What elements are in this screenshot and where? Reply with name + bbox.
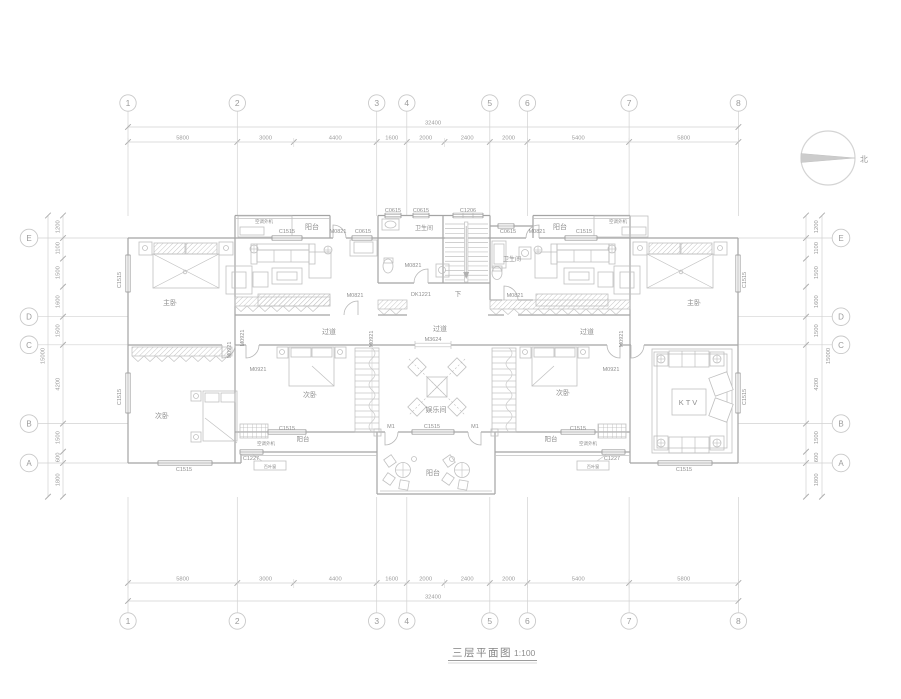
plan-label: 主卧	[687, 298, 701, 307]
grid-letter-left: B	[26, 420, 31, 429]
plan-label: C1515	[570, 426, 586, 432]
dim-top: 2400	[461, 136, 474, 142]
plan-label: C1206	[460, 208, 476, 214]
title-block: 三层平面图 1:100	[448, 647, 537, 663]
dim-left-total: 15000	[41, 348, 47, 364]
furniture-item	[714, 242, 727, 255]
grid-number-top: 2	[235, 98, 240, 108]
furniture-item	[669, 437, 709, 453]
furniture-item	[309, 244, 315, 264]
plan-label: C1515	[176, 467, 192, 473]
wardrobe-column	[355, 348, 379, 432]
furniture-item	[614, 266, 640, 294]
toilet	[383, 259, 393, 273]
dimension-system: 5800580030003000440044001600160020002000…	[41, 121, 833, 604]
furniture-item	[257, 244, 309, 250]
furniture-item	[620, 272, 634, 288]
chair	[458, 480, 468, 490]
plan-label: 空调外机	[257, 440, 275, 447]
furniture-item	[139, 242, 152, 255]
dim-left: 1500	[56, 324, 62, 337]
plan-label: 百叶窗	[264, 463, 277, 470]
grid-number-bottom: 7	[627, 616, 632, 626]
furniture-item	[354, 242, 373, 253]
basin	[385, 221, 396, 228]
furniture-circle	[718, 246, 723, 251]
dim-left: 1200	[56, 220, 62, 233]
grid-number-bottom: 1	[126, 616, 131, 626]
plan-label: C1515	[424, 424, 440, 430]
furniture-item	[649, 243, 680, 254]
dim-left: 1600	[56, 295, 62, 308]
plan-label: M0921	[619, 331, 625, 348]
plan-label: 空调外机	[255, 218, 273, 225]
wardrobe-band	[378, 300, 407, 309]
plan-label: 主卧	[163, 298, 177, 307]
drawing-scale: 1:100	[514, 648, 536, 658]
dim-top-total: 32400	[425, 121, 441, 127]
dim-left: 1800	[56, 473, 62, 486]
furniture-item	[186, 243, 217, 254]
furniture-circle	[143, 246, 148, 251]
furniture-item	[598, 272, 613, 287]
plan-label: 次卧	[303, 390, 317, 399]
furniture-item	[240, 227, 264, 235]
window-mask	[126, 255, 131, 292]
door-swing	[344, 301, 358, 315]
dim-bottom: 2400	[461, 577, 474, 583]
dim-right: 1200	[814, 220, 820, 233]
window-mask	[352, 236, 372, 241]
furniture-item	[253, 272, 268, 287]
furniture-item	[551, 244, 557, 264]
furniture-item	[309, 252, 331, 278]
plan-label: C0615	[385, 208, 401, 214]
dim-top: 5400	[572, 136, 585, 142]
dim-top: 2000	[419, 136, 432, 142]
furniture-part	[532, 366, 554, 386]
plan-label: 娱乐间	[426, 405, 447, 414]
furniture-circle	[194, 394, 199, 399]
grid-number-bottom: 2	[235, 616, 240, 626]
door-swing	[414, 269, 428, 283]
furniture-item	[219, 242, 233, 255]
dim-right: 1800	[814, 473, 820, 486]
dim-right: 4200	[814, 378, 820, 391]
plan-label: M1	[471, 424, 479, 430]
door-swing	[468, 432, 481, 445]
furniture-item	[205, 393, 219, 402]
furniture-item	[277, 347, 288, 358]
furniture-item	[335, 347, 346, 358]
grid-number-top: 3	[374, 98, 379, 108]
dim-top: 3000	[259, 136, 272, 142]
plan-label: M0921	[240, 330, 246, 347]
grid-number-bottom: 8	[736, 616, 741, 626]
wardrobe-band	[132, 347, 232, 356]
window-mask	[240, 450, 263, 455]
plan-label: M0821	[529, 229, 546, 235]
dim-right: 1600	[814, 295, 820, 308]
furniture-item	[312, 348, 332, 357]
furniture-item	[240, 424, 268, 438]
window-mask	[498, 224, 514, 229]
furniture-item	[258, 294, 330, 306]
plan-label: C1515	[279, 229, 295, 235]
dim-left: 600	[56, 453, 62, 463]
grid-number-bottom: 4	[404, 616, 409, 626]
furniture-circle	[581, 350, 586, 355]
wardrobe-hatching	[132, 297, 630, 432]
zigzag	[378, 309, 402, 315]
furniture-item	[555, 348, 575, 357]
toilet	[492, 267, 502, 280]
chair	[399, 480, 409, 490]
furniture-item	[226, 266, 252, 294]
plan-label: 下	[455, 290, 462, 298]
grid-number-bottom: 5	[487, 616, 492, 626]
furniture-item	[277, 272, 297, 280]
plan-label: M0821	[347, 293, 364, 299]
plan-label: 过道	[322, 327, 336, 336]
grid-letter-right: A	[838, 459, 844, 468]
furniture-item	[534, 348, 554, 357]
furniture-item	[535, 252, 557, 278]
dim-bottom: 2000	[419, 577, 432, 583]
dim-left: 4200	[56, 378, 62, 391]
furniture-item	[191, 432, 201, 442]
grid-number-bottom: 3	[374, 616, 379, 626]
dim-bottom: 2000	[502, 577, 515, 583]
plan-label: C0615	[500, 229, 516, 235]
dim-top: 5800	[176, 136, 189, 142]
dim-bottom: 1600	[385, 577, 398, 583]
furniture-item	[681, 243, 712, 254]
grid-number-top: 5	[487, 98, 492, 108]
plan-label: 卫生间	[503, 255, 521, 263]
grid-number-top: 8	[736, 98, 741, 108]
furniture-circle	[412, 457, 417, 462]
furniture-item	[203, 391, 237, 441]
plan-label: 阳台	[305, 222, 319, 231]
plan-label: C1515	[117, 389, 123, 405]
plan-label: C1515	[576, 229, 592, 235]
dim-left: 1100	[56, 242, 62, 254]
furniture-item	[598, 424, 626, 438]
north-arrow-needle	[801, 154, 855, 163]
dim-top: 5800	[677, 136, 690, 142]
plan-label: M3624	[425, 337, 442, 343]
north-label: 北	[860, 155, 868, 164]
window-mask	[602, 450, 625, 455]
door-swing	[631, 345, 644, 358]
grid-lines	[38, 112, 832, 613]
plan-label: C1515	[279, 426, 295, 432]
furniture-circle	[194, 435, 199, 440]
plan-label: C1515	[117, 272, 123, 288]
plan-label: C1515	[742, 272, 748, 288]
dim-left: 1500	[56, 431, 62, 444]
zigzag	[235, 306, 319, 312]
plan-label: 次卧	[155, 411, 169, 420]
plan-label: M0921	[603, 367, 620, 373]
grid-letter-right: B	[838, 420, 843, 429]
grid-letter-right: D	[838, 313, 844, 322]
dim-right: 1100	[814, 242, 820, 254]
north-arrow: 北	[801, 131, 868, 185]
drawing-title: 三层平面图	[452, 647, 512, 659]
chair	[709, 372, 733, 396]
furniture-circle	[638, 246, 643, 251]
furniture-part	[205, 418, 237, 443]
grid-number-top: 4	[404, 98, 409, 108]
furniture-circle	[280, 350, 285, 355]
window-mask	[736, 373, 741, 413]
plan-label: C1227	[243, 456, 259, 462]
plan-label: C0615	[413, 208, 429, 214]
furniture-item	[154, 243, 185, 254]
plan-label: M0821	[330, 229, 347, 235]
door-swing	[385, 432, 398, 445]
drawing-canvas: 5800580030003000440044001600160020002000…	[0, 0, 901, 699]
furniture-item	[520, 347, 531, 358]
grid-number-bottom: 6	[525, 616, 530, 626]
furniture-item	[557, 250, 609, 262]
dim-bottom: 4400	[329, 577, 342, 583]
furniture-item	[291, 348, 311, 357]
plan-label: 百叶窗	[587, 463, 600, 470]
wardrobe-column	[492, 348, 516, 432]
grid-letter-left: C	[26, 341, 32, 350]
dim-right: 600	[814, 453, 820, 463]
window-mask	[658, 461, 712, 466]
furniture-item	[578, 347, 589, 358]
grid-number-top: 1	[126, 98, 131, 108]
dim-bottom: 5400	[572, 577, 585, 583]
grid-bubbles: 1122334455667788EEDDCCBBAA	[20, 95, 850, 629]
plan-label: 阳台	[426, 468, 440, 477]
zigzag	[132, 356, 228, 362]
furniture-item	[569, 272, 589, 280]
plan-label: DK1221	[411, 292, 431, 298]
chair	[384, 455, 397, 468]
furniture-item	[564, 268, 594, 284]
grid-letter-left: A	[26, 459, 32, 468]
dim-bottom-total: 32400	[425, 595, 441, 601]
dim-right: 1500	[814, 266, 820, 279]
plan-label: M0821	[405, 263, 422, 269]
furniture-part	[312, 366, 334, 386]
dim-bottom: 5800	[176, 577, 189, 583]
plan-label: 空调外机	[609, 218, 627, 225]
zigzag	[490, 309, 622, 315]
dim-bottom: 3000	[259, 577, 272, 583]
dim-bottom: 5800	[677, 577, 690, 583]
furniture-circle	[522, 250, 529, 257]
furniture-item	[557, 244, 609, 250]
dim-top: 2000	[502, 136, 515, 142]
staircase	[445, 222, 488, 282]
floor-plan-svg: 5800580030003000440044001600160020002000…	[0, 0, 901, 699]
chair	[383, 473, 396, 486]
furniture-item	[191, 391, 201, 401]
furniture-item	[257, 250, 309, 262]
grid-number-top: 6	[525, 98, 530, 108]
furniture-item	[221, 393, 235, 402]
plan-label: M0921	[369, 331, 375, 348]
dim-right: 1500	[814, 324, 820, 337]
dim-left: 1500	[56, 266, 62, 279]
furniture-circle	[224, 246, 229, 251]
detail-lines	[235, 219, 630, 492]
window-mask	[126, 373, 131, 413]
plan-label: 阳台	[545, 434, 558, 443]
door-swing	[246, 345, 259, 358]
plan-label: 卫生间	[415, 224, 433, 232]
furniture-item	[633, 242, 647, 255]
furniture-circle	[523, 350, 528, 355]
dim-top: 1600	[385, 136, 398, 142]
window-mask	[272, 236, 302, 241]
plan-label: C1515	[676, 467, 692, 473]
grid-letter-right: C	[838, 341, 844, 350]
grid-letter-left: E	[26, 234, 31, 243]
dim-right: 1500	[814, 431, 820, 444]
plan-label: C1227	[604, 456, 620, 462]
plan-label: M0821	[507, 293, 524, 299]
furniture-item	[272, 268, 302, 284]
plan-label: 阳台	[553, 222, 567, 231]
furniture-item	[669, 351, 709, 367]
plan-label: M1	[387, 424, 395, 430]
furniture-circle	[338, 350, 343, 355]
plan-label: C1515	[742, 389, 748, 405]
plan-label: 次卧	[556, 388, 570, 397]
window-mask	[565, 236, 597, 241]
plan-label: C0615	[355, 229, 371, 235]
window-mask	[736, 255, 741, 292]
plan-label: 过道	[580, 327, 594, 336]
plan-label: 阳台	[297, 434, 310, 443]
chair	[709, 398, 733, 422]
plan-label: KTV	[679, 398, 700, 407]
furniture-circle	[439, 267, 446, 274]
grid-letter-right: E	[838, 234, 843, 243]
dim-top: 4400	[329, 136, 342, 142]
furniture-item	[622, 227, 646, 235]
plan-label: 空调外机	[579, 440, 597, 447]
furniture-item	[232, 272, 246, 288]
window-mask	[412, 430, 454, 435]
furniture-item	[536, 294, 608, 306]
chair	[442, 473, 455, 486]
plan-label: M0921	[250, 367, 267, 373]
window-mask	[158, 461, 212, 466]
grid-number-top: 7	[627, 98, 632, 108]
dim-right-total: 15000	[826, 348, 832, 364]
plan-label: M0921	[227, 342, 233, 359]
plan-label: 过道	[433, 324, 447, 333]
grid-letter-left: D	[26, 313, 32, 322]
